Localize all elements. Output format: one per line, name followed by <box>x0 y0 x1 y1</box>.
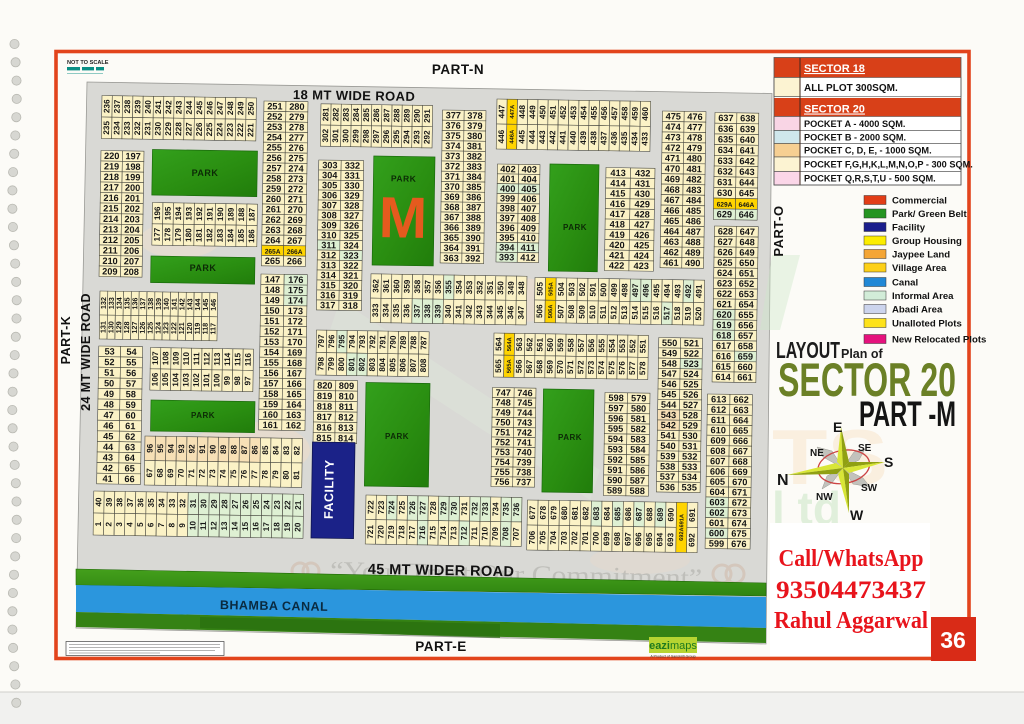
svg-text:26: 26 <box>241 499 250 509</box>
svg-text:492: 492 <box>684 284 693 298</box>
svg-text:360: 360 <box>392 279 401 293</box>
svg-text:86: 86 <box>250 445 259 455</box>
svg-text:295: 295 <box>392 129 401 143</box>
svg-text:146: 146 <box>209 299 218 311</box>
svg-text:247: 247 <box>216 101 225 115</box>
svg-text:439: 439 <box>579 131 588 145</box>
svg-text:11: 11 <box>199 521 208 530</box>
svg-text:454: 454 <box>579 106 588 120</box>
svg-text:407: 407 <box>521 204 536 214</box>
svg-text:495: 495 <box>652 283 661 297</box>
svg-text:188: 188 <box>237 207 246 221</box>
svg-text:586: 586 <box>630 465 645 475</box>
svg-text:413: 413 <box>610 168 625 178</box>
svg-text:812: 812 <box>338 412 353 422</box>
svg-text:669: 669 <box>732 467 747 477</box>
svg-text:406: 406 <box>521 194 536 204</box>
svg-text:516: 516 <box>652 306 661 320</box>
svg-text:698: 698 <box>613 532 622 546</box>
svg-text:58: 58 <box>126 389 136 399</box>
svg-text:637: 637 <box>718 113 733 123</box>
svg-text:288: 288 <box>392 108 401 122</box>
svg-text:73: 73 <box>208 469 217 479</box>
svg-text:201: 201 <box>125 193 140 203</box>
svg-text:362: 362 <box>371 279 380 293</box>
svg-text:486: 486 <box>686 216 701 226</box>
svg-text:Facility: Facility <box>892 223 926 234</box>
svg-text:40: 40 <box>94 497 103 507</box>
svg-text:89: 89 <box>219 444 228 454</box>
svg-text:18 MT WIDE ROAD: 18 MT WIDE ROAD <box>293 87 416 104</box>
svg-text:427: 427 <box>634 220 649 230</box>
svg-text:105: 105 <box>161 372 170 386</box>
svg-text:281: 281 <box>321 107 330 121</box>
svg-text:410: 410 <box>520 233 535 243</box>
svg-text:363: 363 <box>443 253 458 263</box>
svg-text:284: 284 <box>352 108 361 122</box>
svg-text:457: 457 <box>610 106 619 120</box>
svg-text:365: 365 <box>444 233 459 243</box>
svg-text:471: 471 <box>665 153 680 163</box>
svg-text:522: 522 <box>684 348 699 358</box>
svg-text:Call/WhatsApp: Call/WhatsApp <box>779 546 924 572</box>
svg-text:261: 261 <box>266 204 281 214</box>
svg-text:39: 39 <box>105 497 114 507</box>
svg-text:583: 583 <box>630 434 645 444</box>
svg-text:610: 610 <box>710 425 725 435</box>
svg-text:584: 584 <box>630 445 646 455</box>
svg-text:NOT TO SCALE: NOT TO SCALE <box>67 60 109 66</box>
svg-text:575: 575 <box>607 361 616 375</box>
svg-text:110: 110 <box>182 352 191 366</box>
svg-text:612: 612 <box>711 405 726 415</box>
svg-text:731: 731 <box>460 501 469 515</box>
svg-text:526: 526 <box>683 390 698 400</box>
svg-text:77: 77 <box>250 469 259 479</box>
svg-text:556: 556 <box>587 338 596 352</box>
svg-text:PARK: PARK <box>192 168 219 178</box>
svg-text:375: 375 <box>445 131 460 141</box>
svg-text:477: 477 <box>687 122 702 132</box>
svg-text:396: 396 <box>499 223 514 233</box>
svg-text:204: 204 <box>124 225 140 235</box>
svg-text:740: 740 <box>516 447 531 457</box>
svg-text:671: 671 <box>732 487 747 497</box>
svg-text:91: 91 <box>198 444 207 454</box>
svg-text:470: 470 <box>665 164 680 174</box>
svg-text:807: 807 <box>409 358 418 372</box>
svg-text:629A: 629A <box>717 202 733 209</box>
svg-text:226: 226 <box>195 122 204 136</box>
svg-text:666: 666 <box>733 436 748 446</box>
svg-text:338: 338 <box>423 304 432 318</box>
svg-text:355: 355 <box>444 280 453 294</box>
svg-text:374: 374 <box>445 141 461 151</box>
svg-text:735: 735 <box>502 502 511 516</box>
svg-text:246: 246 <box>205 101 214 115</box>
svg-text:228: 228 <box>174 122 183 136</box>
svg-text:749: 749 <box>495 407 510 417</box>
svg-text:80: 80 <box>282 470 291 480</box>
svg-text:616: 616 <box>716 351 731 361</box>
svg-text:319: 319 <box>343 290 358 300</box>
svg-text:166: 166 <box>286 379 301 389</box>
svg-text:303: 303 <box>322 160 337 170</box>
svg-text:Abadi Area: Abadi Area <box>892 305 943 316</box>
svg-text:157: 157 <box>263 378 278 388</box>
svg-text:361: 361 <box>382 279 391 293</box>
svg-text:820: 820 <box>317 380 332 390</box>
svg-text:623: 623 <box>717 278 732 288</box>
svg-text:700: 700 <box>591 531 600 545</box>
svg-text:447: 447 <box>497 104 506 118</box>
svg-text:176: 176 <box>288 275 303 285</box>
svg-text:632: 632 <box>717 166 732 176</box>
svg-text:251: 251 <box>267 101 282 111</box>
svg-text:Commercial: Commercial <box>892 196 947 207</box>
svg-text:412: 412 <box>520 253 535 263</box>
svg-text:99: 99 <box>223 376 232 386</box>
svg-text:377: 377 <box>446 110 461 120</box>
svg-text:336: 336 <box>402 304 411 318</box>
svg-text:64: 64 <box>125 453 136 463</box>
svg-text:608: 608 <box>710 446 725 456</box>
svg-text:292: 292 <box>422 130 431 144</box>
svg-text:POCKET B - 2000 SQM.: POCKET B - 2000 SQM. <box>804 132 906 142</box>
svg-text:726: 726 <box>408 501 417 515</box>
svg-text:50: 50 <box>104 378 114 388</box>
svg-text:297: 297 <box>372 129 381 143</box>
svg-text:SW: SW <box>861 483 878 494</box>
svg-text:693: 693 <box>666 532 675 546</box>
svg-text:753: 753 <box>495 447 510 457</box>
svg-text:353: 353 <box>465 280 474 294</box>
svg-text:416: 416 <box>610 199 625 209</box>
svg-text:222: 222 <box>236 123 245 137</box>
svg-text:82: 82 <box>292 446 301 456</box>
svg-text:643: 643 <box>739 167 754 177</box>
svg-text:52: 52 <box>104 357 114 367</box>
svg-text:421: 421 <box>609 250 624 260</box>
svg-text:579: 579 <box>631 393 646 403</box>
svg-text:334: 334 <box>381 303 390 317</box>
svg-text:153: 153 <box>264 337 279 347</box>
svg-text:794: 794 <box>348 334 357 348</box>
svg-text:746: 746 <box>517 388 532 398</box>
svg-text:PART -M: PART -M <box>859 395 956 434</box>
svg-text:326: 326 <box>344 221 359 231</box>
svg-text:714: 714 <box>439 526 448 540</box>
svg-text:545: 545 <box>661 389 676 399</box>
svg-text:535: 535 <box>681 482 696 492</box>
svg-text:648: 648 <box>739 237 754 247</box>
svg-text:435: 435 <box>620 131 629 145</box>
svg-text:330: 330 <box>344 181 359 191</box>
svg-text:560: 560 <box>546 338 555 352</box>
svg-text:299: 299 <box>351 129 360 143</box>
svg-text:340: 340 <box>444 304 453 318</box>
svg-text:307: 307 <box>322 200 337 210</box>
svg-text:269: 269 <box>287 215 302 225</box>
svg-text:811: 811 <box>339 402 354 412</box>
svg-text:177: 177 <box>153 227 162 241</box>
svg-text:708: 708 <box>501 527 510 541</box>
svg-text:791: 791 <box>378 335 387 349</box>
svg-text:817: 817 <box>317 412 332 422</box>
svg-text:668: 668 <box>732 457 747 467</box>
svg-text:729: 729 <box>439 501 448 515</box>
svg-text:712: 712 <box>460 526 469 540</box>
svg-text:651: 651 <box>739 268 754 278</box>
svg-text:628: 628 <box>718 226 733 236</box>
svg-text:689: 689 <box>656 507 665 521</box>
svg-text:814: 814 <box>338 433 354 443</box>
svg-text:626: 626 <box>717 247 732 257</box>
svg-text:266A: 266A <box>287 249 303 256</box>
svg-text:102: 102 <box>192 373 201 387</box>
svg-text:101: 101 <box>202 373 211 387</box>
svg-text:447A: 447A <box>510 104 516 119</box>
svg-text:706: 706 <box>528 530 537 544</box>
svg-text:312: 312 <box>321 250 336 260</box>
svg-text:243: 243 <box>174 100 183 114</box>
svg-text:210: 210 <box>102 256 117 266</box>
svg-text:661: 661 <box>737 372 752 382</box>
svg-text:240: 240 <box>144 100 153 114</box>
svg-text:750: 750 <box>495 417 510 427</box>
svg-text:473: 473 <box>665 132 680 142</box>
svg-text:290: 290 <box>413 108 422 122</box>
svg-text:569: 569 <box>545 360 554 374</box>
svg-text:112: 112 <box>202 352 211 366</box>
svg-text:357: 357 <box>423 279 432 293</box>
svg-text:426: 426 <box>634 230 649 240</box>
svg-text:793: 793 <box>358 335 367 349</box>
svg-text:508: 508 <box>567 304 576 318</box>
svg-text:161: 161 <box>262 420 277 430</box>
svg-text:180: 180 <box>184 228 193 242</box>
svg-text:SE: SE <box>858 443 872 454</box>
svg-text:748: 748 <box>495 397 510 407</box>
svg-text:PART-N: PART-N <box>432 62 484 77</box>
svg-text:520: 520 <box>694 306 703 320</box>
svg-text:Village Area: Village Area <box>892 263 947 274</box>
svg-text:231: 231 <box>143 121 152 135</box>
svg-text:SECTOR 18: SECTOR 18 <box>804 63 865 75</box>
svg-text:681: 681 <box>571 506 580 520</box>
svg-text:646: 646 <box>739 210 754 220</box>
svg-text:21: 21 <box>294 500 303 510</box>
svg-text:703: 703 <box>560 531 569 545</box>
svg-text:646A: 646A <box>739 202 755 209</box>
svg-text:445: 445 <box>517 130 526 144</box>
svg-text:618: 618 <box>716 330 731 340</box>
svg-text:2: 2 <box>104 521 113 526</box>
svg-text:76: 76 <box>240 469 249 479</box>
svg-text:645: 645 <box>739 188 754 198</box>
svg-text:68: 68 <box>156 468 165 478</box>
svg-text:797: 797 <box>317 334 326 348</box>
svg-text:93504473437: 93504473437 <box>776 577 926 604</box>
svg-text:619: 619 <box>716 320 731 330</box>
svg-text:381: 381 <box>467 141 482 151</box>
svg-text:417: 417 <box>610 209 625 219</box>
svg-text:323: 323 <box>343 250 358 260</box>
svg-text:728: 728 <box>429 501 438 515</box>
svg-text:676: 676 <box>731 539 746 549</box>
svg-text:510: 510 <box>588 305 597 319</box>
svg-text:36: 36 <box>136 498 145 508</box>
svg-text:546: 546 <box>661 379 676 389</box>
svg-text:207: 207 <box>124 256 139 266</box>
svg-text:211: 211 <box>103 245 118 255</box>
svg-text:104: 104 <box>171 372 180 386</box>
svg-text:478: 478 <box>687 133 702 143</box>
svg-text:332: 332 <box>345 161 360 171</box>
svg-text:443: 443 <box>538 130 547 144</box>
svg-text:540: 540 <box>660 441 675 451</box>
svg-text:83: 83 <box>282 445 291 455</box>
svg-text:392: 392 <box>465 253 480 263</box>
svg-text:493: 493 <box>673 284 682 298</box>
svg-text:78: 78 <box>261 470 270 480</box>
svg-text:31: 31 <box>189 498 198 508</box>
svg-text:665: 665 <box>733 426 748 436</box>
svg-text:692: 692 <box>687 533 696 547</box>
svg-text:603: 603 <box>709 497 724 507</box>
svg-text:597: 597 <box>608 403 623 413</box>
svg-text:257: 257 <box>266 163 281 173</box>
svg-text:308: 308 <box>321 210 336 220</box>
svg-text:460: 460 <box>641 106 650 120</box>
svg-text:448: 448 <box>518 105 527 119</box>
svg-text:206: 206 <box>124 246 139 256</box>
svg-text:472: 472 <box>665 143 680 153</box>
svg-text:POCKET F,G,H,K,L,M,N,O,P -: POCKET F,G,H,K,L,M,N,O,P - 300 SQM. <box>804 160 973 170</box>
svg-text:732: 732 <box>470 502 479 516</box>
svg-text:577: 577 <box>628 361 637 375</box>
svg-text:359: 359 <box>403 279 412 293</box>
svg-text:215: 215 <box>103 203 118 213</box>
svg-text:54: 54 <box>126 347 137 357</box>
svg-text:523: 523 <box>683 359 698 369</box>
svg-text:567: 567 <box>525 359 534 373</box>
svg-text:34: 34 <box>157 498 166 508</box>
svg-text:813: 813 <box>338 423 353 433</box>
svg-text:192: 192 <box>195 207 204 221</box>
svg-text:503: 503 <box>567 282 576 296</box>
svg-text:501: 501 <box>588 282 597 296</box>
svg-text:534: 534 <box>682 472 698 482</box>
svg-text:802: 802 <box>357 357 366 371</box>
svg-text:678: 678 <box>539 505 548 519</box>
svg-text:424: 424 <box>634 251 650 261</box>
svg-text:536: 536 <box>660 482 675 492</box>
svg-text:SECTOR 20: SECTOR 20 <box>804 104 865 116</box>
svg-text:PART-E: PART-E <box>415 639 467 654</box>
svg-text:Unalloted Plots: Unalloted Plots <box>892 319 962 330</box>
svg-text:521: 521 <box>684 338 699 348</box>
svg-text:Jaypee Land: Jaypee Land <box>892 250 950 261</box>
svg-text:183: 183 <box>216 228 225 242</box>
svg-text:BHAMBA CANAL: BHAMBA CANAL <box>220 598 329 614</box>
svg-text:378: 378 <box>467 111 482 121</box>
svg-text:622: 622 <box>717 289 732 299</box>
svg-text:656: 656 <box>738 320 753 330</box>
svg-text:481: 481 <box>686 164 701 174</box>
svg-text:235: 235 <box>102 121 111 135</box>
svg-text:548: 548 <box>662 358 677 368</box>
svg-text:692A691A: 692A691A <box>679 514 685 541</box>
svg-text:81: 81 <box>292 470 301 480</box>
svg-text:590: 590 <box>607 475 622 485</box>
svg-text:M: M <box>378 185 427 251</box>
svg-text:751: 751 <box>495 427 510 437</box>
svg-text:S: S <box>884 454 893 470</box>
svg-text:178: 178 <box>163 227 172 241</box>
svg-text:92: 92 <box>188 444 197 454</box>
svg-text:596: 596 <box>608 413 623 423</box>
svg-text:74: 74 <box>219 469 228 479</box>
svg-text:430: 430 <box>635 189 650 199</box>
svg-text:115: 115 <box>233 352 242 366</box>
svg-text:W: W <box>850 507 864 523</box>
svg-text:734: 734 <box>491 502 500 516</box>
svg-text:100: 100 <box>212 373 221 387</box>
svg-text:642: 642 <box>739 156 754 166</box>
svg-text:315: 315 <box>320 280 335 290</box>
svg-text:699: 699 <box>602 531 611 545</box>
svg-text:673: 673 <box>732 508 747 518</box>
svg-text:43: 43 <box>103 452 113 462</box>
svg-text:160: 160 <box>263 410 278 420</box>
svg-text:733: 733 <box>481 502 490 516</box>
svg-text:494: 494 <box>663 284 672 298</box>
svg-text:346: 346 <box>506 305 515 319</box>
svg-text:533: 533 <box>682 462 697 472</box>
svg-text:277: 277 <box>289 133 304 143</box>
svg-text:387: 387 <box>466 202 481 212</box>
svg-text:809: 809 <box>339 381 354 391</box>
svg-text:709: 709 <box>491 526 500 540</box>
svg-text:341: 341 <box>454 304 463 318</box>
svg-text:296: 296 <box>382 129 391 143</box>
svg-text:627: 627 <box>718 237 733 247</box>
svg-text:13: 13 <box>220 521 229 531</box>
svg-text:423: 423 <box>634 261 649 271</box>
svg-text:428: 428 <box>634 209 649 219</box>
svg-text:400: 400 <box>500 184 515 194</box>
svg-text:738: 738 <box>516 467 531 477</box>
svg-text:267: 267 <box>287 236 302 246</box>
svg-text:6: 6 <box>146 522 155 527</box>
svg-text:306: 306 <box>322 190 337 200</box>
svg-text:549: 549 <box>662 348 677 358</box>
svg-text:276: 276 <box>289 143 304 153</box>
svg-text:476: 476 <box>687 112 702 122</box>
svg-text:159: 159 <box>263 399 278 409</box>
svg-text:253: 253 <box>267 122 282 132</box>
svg-text:555: 555 <box>597 338 606 352</box>
svg-text:458: 458 <box>620 106 629 120</box>
svg-text:114: 114 <box>223 352 232 366</box>
svg-text:60: 60 <box>125 410 135 420</box>
svg-text:711: 711 <box>470 526 479 540</box>
svg-text:205: 205 <box>124 235 139 245</box>
svg-text:23: 23 <box>273 500 282 510</box>
svg-text:270: 270 <box>288 205 303 215</box>
svg-text:181: 181 <box>195 228 204 242</box>
